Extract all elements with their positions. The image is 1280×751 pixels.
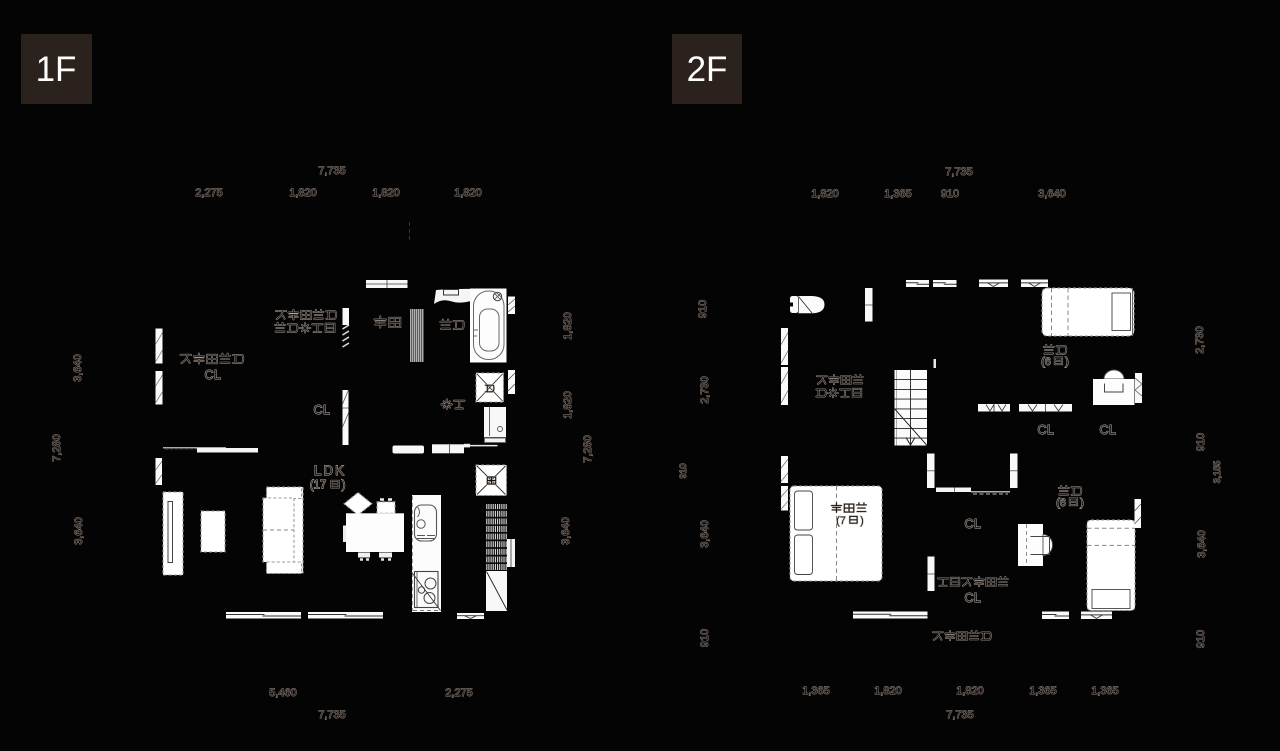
svg-text:1,820: 1,820 [372,187,400,199]
svg-text:CL: CL [205,368,222,382]
svg-text:CL: CL [1038,423,1055,437]
svg-text:LDK: LDK [314,463,346,478]
svg-text:910: 910 [699,629,711,647]
svg-text:): ) [1065,356,1069,368]
svg-text:CL: CL [965,591,982,605]
svg-text:CL: CL [965,517,982,531]
svg-text:910: 910 [941,188,959,200]
svg-text:910: 910 [678,463,688,478]
svg-text:3,640: 3,640 [699,520,711,548]
svg-text:): ) [342,480,346,492]
svg-text:1,365: 1,365 [1029,685,1057,697]
svg-text:3,640: 3,640 [73,517,85,545]
svg-text:7,280: 7,280 [51,434,63,462]
svg-text:1,820: 1,820 [811,188,839,200]
svg-text:910: 910 [697,300,709,318]
svg-text:2,730: 2,730 [1194,326,1206,354]
svg-text:5,460: 5,460 [269,687,297,699]
svg-text:2,275: 2,275 [195,187,223,199]
svg-text:1,820: 1,820 [874,685,902,697]
svg-text:2,730: 2,730 [699,376,711,404]
svg-text:CL: CL [1100,423,1117,437]
svg-text:7,735: 7,735 [318,709,346,721]
svg-text:1,820: 1,820 [289,187,317,199]
svg-text:3,640: 3,640 [1196,530,1208,558]
svg-text:1,820: 1,820 [562,312,574,340]
svg-text:1,820: 1,820 [454,187,482,199]
svg-text:(7: (7 [836,515,846,527]
svg-text:1,820: 1,820 [562,391,574,419]
svg-text:910: 910 [1195,630,1207,648]
svg-text:1,365: 1,365 [1091,685,1119,697]
svg-text:910: 910 [1195,433,1207,451]
svg-text:1,365: 1,365 [802,685,830,697]
svg-text:(17: (17 [310,480,327,492]
svg-text:(6: (6 [1041,356,1051,368]
svg-text:2F: 2F [687,50,728,89]
svg-text:): ) [860,515,864,527]
svg-text:3,640: 3,640 [72,354,84,382]
svg-text:1,820: 1,820 [956,685,984,697]
svg-text:7,735: 7,735 [946,709,974,721]
svg-text:7,735: 7,735 [318,165,346,177]
svg-text:1,365: 1,365 [884,188,912,200]
svg-text:3,185: 3,185 [1212,461,1222,484]
svg-text:2,275: 2,275 [445,687,473,699]
svg-text:3,640: 3,640 [1038,188,1066,200]
svg-text:3,640: 3,640 [560,517,572,545]
svg-text:): ) [1080,497,1084,509]
svg-text:(6: (6 [1056,497,1066,509]
svg-text:1F: 1F [36,50,77,89]
svg-text:7,280: 7,280 [582,435,594,463]
svg-text:CL: CL [314,403,331,417]
svg-text:7,735: 7,735 [945,166,973,178]
